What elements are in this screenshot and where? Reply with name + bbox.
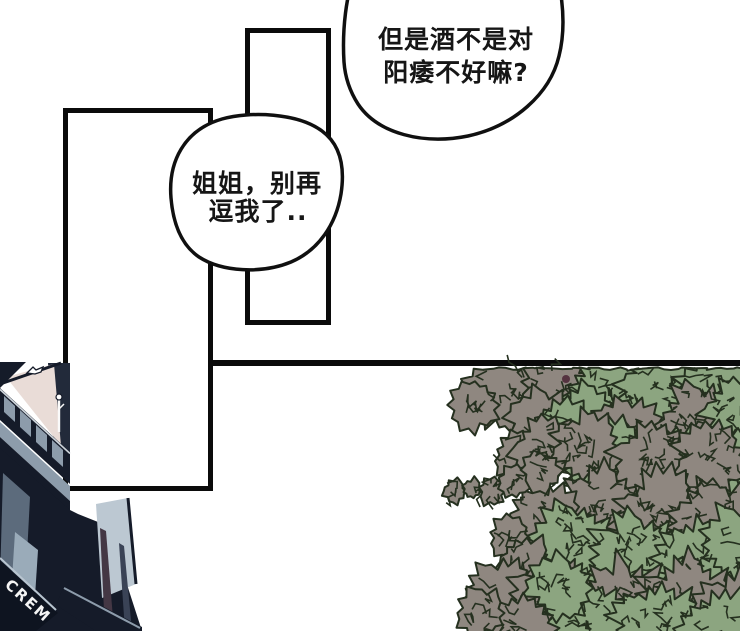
speech-bubble-top-line1: 但是酒不是对: [378, 25, 534, 54]
panel-divider-line: [206, 360, 740, 366]
speech-bubble-mid-line2: 逗我了..: [209, 197, 308, 226]
comic-page: CREM 但是酒不是对 阳痿不好嘛? 姐姐，别再 逗我了..: [0, 0, 740, 631]
speech-bubble-top-line2: 阳痿不好嘛?: [383, 58, 529, 87]
antenna-lamp: [56, 394, 62, 400]
tree-foliage: [442, 355, 740, 631]
comic-artwork: CREM 但是酒不是对 阳痿不好嘛? 姐姐，别再 逗我了..: [0, 0, 740, 631]
speech-bubble-mid-line1: 姐姐，别再: [192, 169, 322, 198]
